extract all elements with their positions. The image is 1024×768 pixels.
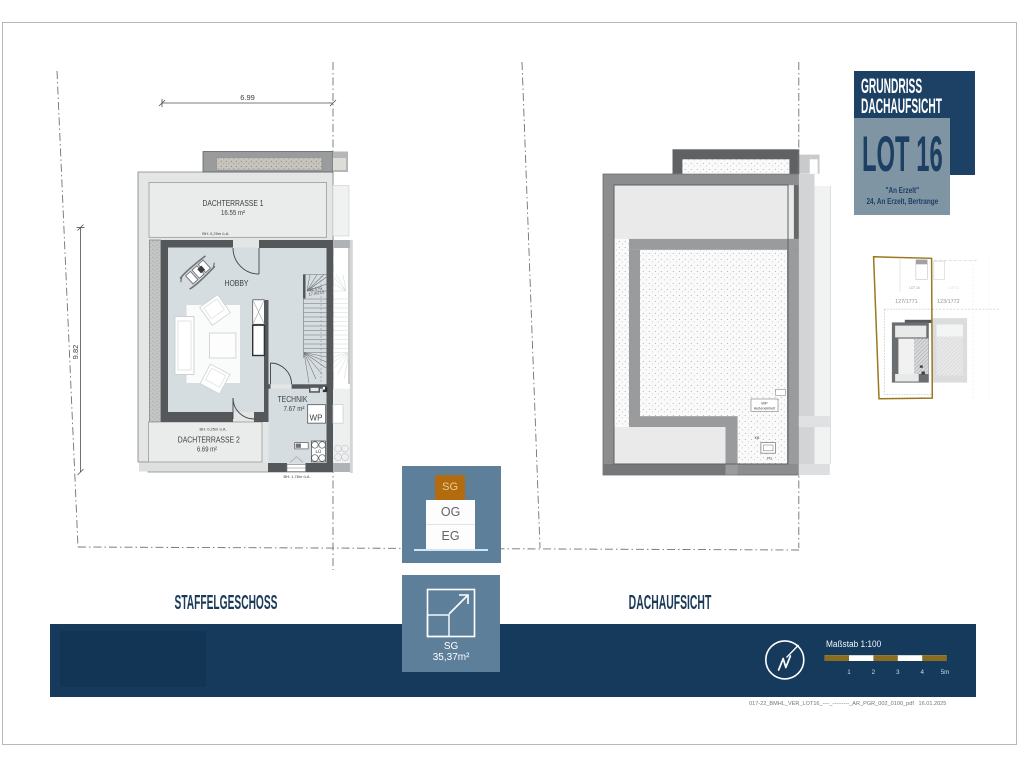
svg-text:4: 4 [920, 669, 924, 676]
svg-text:9.82: 9.82 [71, 345, 80, 360]
svg-text:127/1771: 127/1771 [895, 299, 918, 305]
svg-text:6.99: 6.99 [240, 93, 255, 102]
svg-text:DACHTERRASSE 2: DACHTERRASSE 2 [178, 436, 240, 445]
svg-text:16.55 m²: 16.55 m² [221, 208, 245, 217]
svg-text:BH: 0,25m ü.A.: BH: 0,25m ü.A. [202, 231, 229, 236]
svg-text:WP: WP [310, 414, 323, 423]
svg-text:123/1772: 123/1772 [937, 299, 960, 305]
svg-text:1: 1 [847, 669, 851, 676]
svg-text:KB: KB [755, 436, 760, 440]
svg-text:FG: FG [767, 457, 772, 461]
svg-text:TECHNIK: TECHNIK [278, 395, 309, 404]
svg-text:6.69 m²: 6.69 m² [197, 445, 217, 454]
svg-text:5m: 5m [941, 669, 950, 676]
svg-text:HOBBY: HOBBY [225, 279, 250, 288]
svg-text:Außeneinheit: Außeneinheit [754, 407, 775, 411]
svg-text:LOT 16: LOT 16 [909, 285, 920, 290]
svg-text:2: 2 [872, 669, 876, 676]
svg-text:3: 3 [896, 669, 900, 676]
svg-text:WP: WP [761, 401, 768, 406]
svg-text:7.67 m²: 7.67 m² [284, 404, 305, 413]
svg-text:LÜ: LÜ [316, 448, 322, 454]
svg-text:LOT 17: LOT 17 [949, 285, 960, 290]
svg-text:BH: 1,76m ü.A.: BH: 1,76m ü.A. [283, 474, 310, 479]
svg-text:DACHTERRASSE 1: DACHTERRASSE 1 [203, 199, 264, 208]
svg-text:BH: 0,25m ü.A.: BH: 0,25m ü.A. [199, 426, 226, 431]
